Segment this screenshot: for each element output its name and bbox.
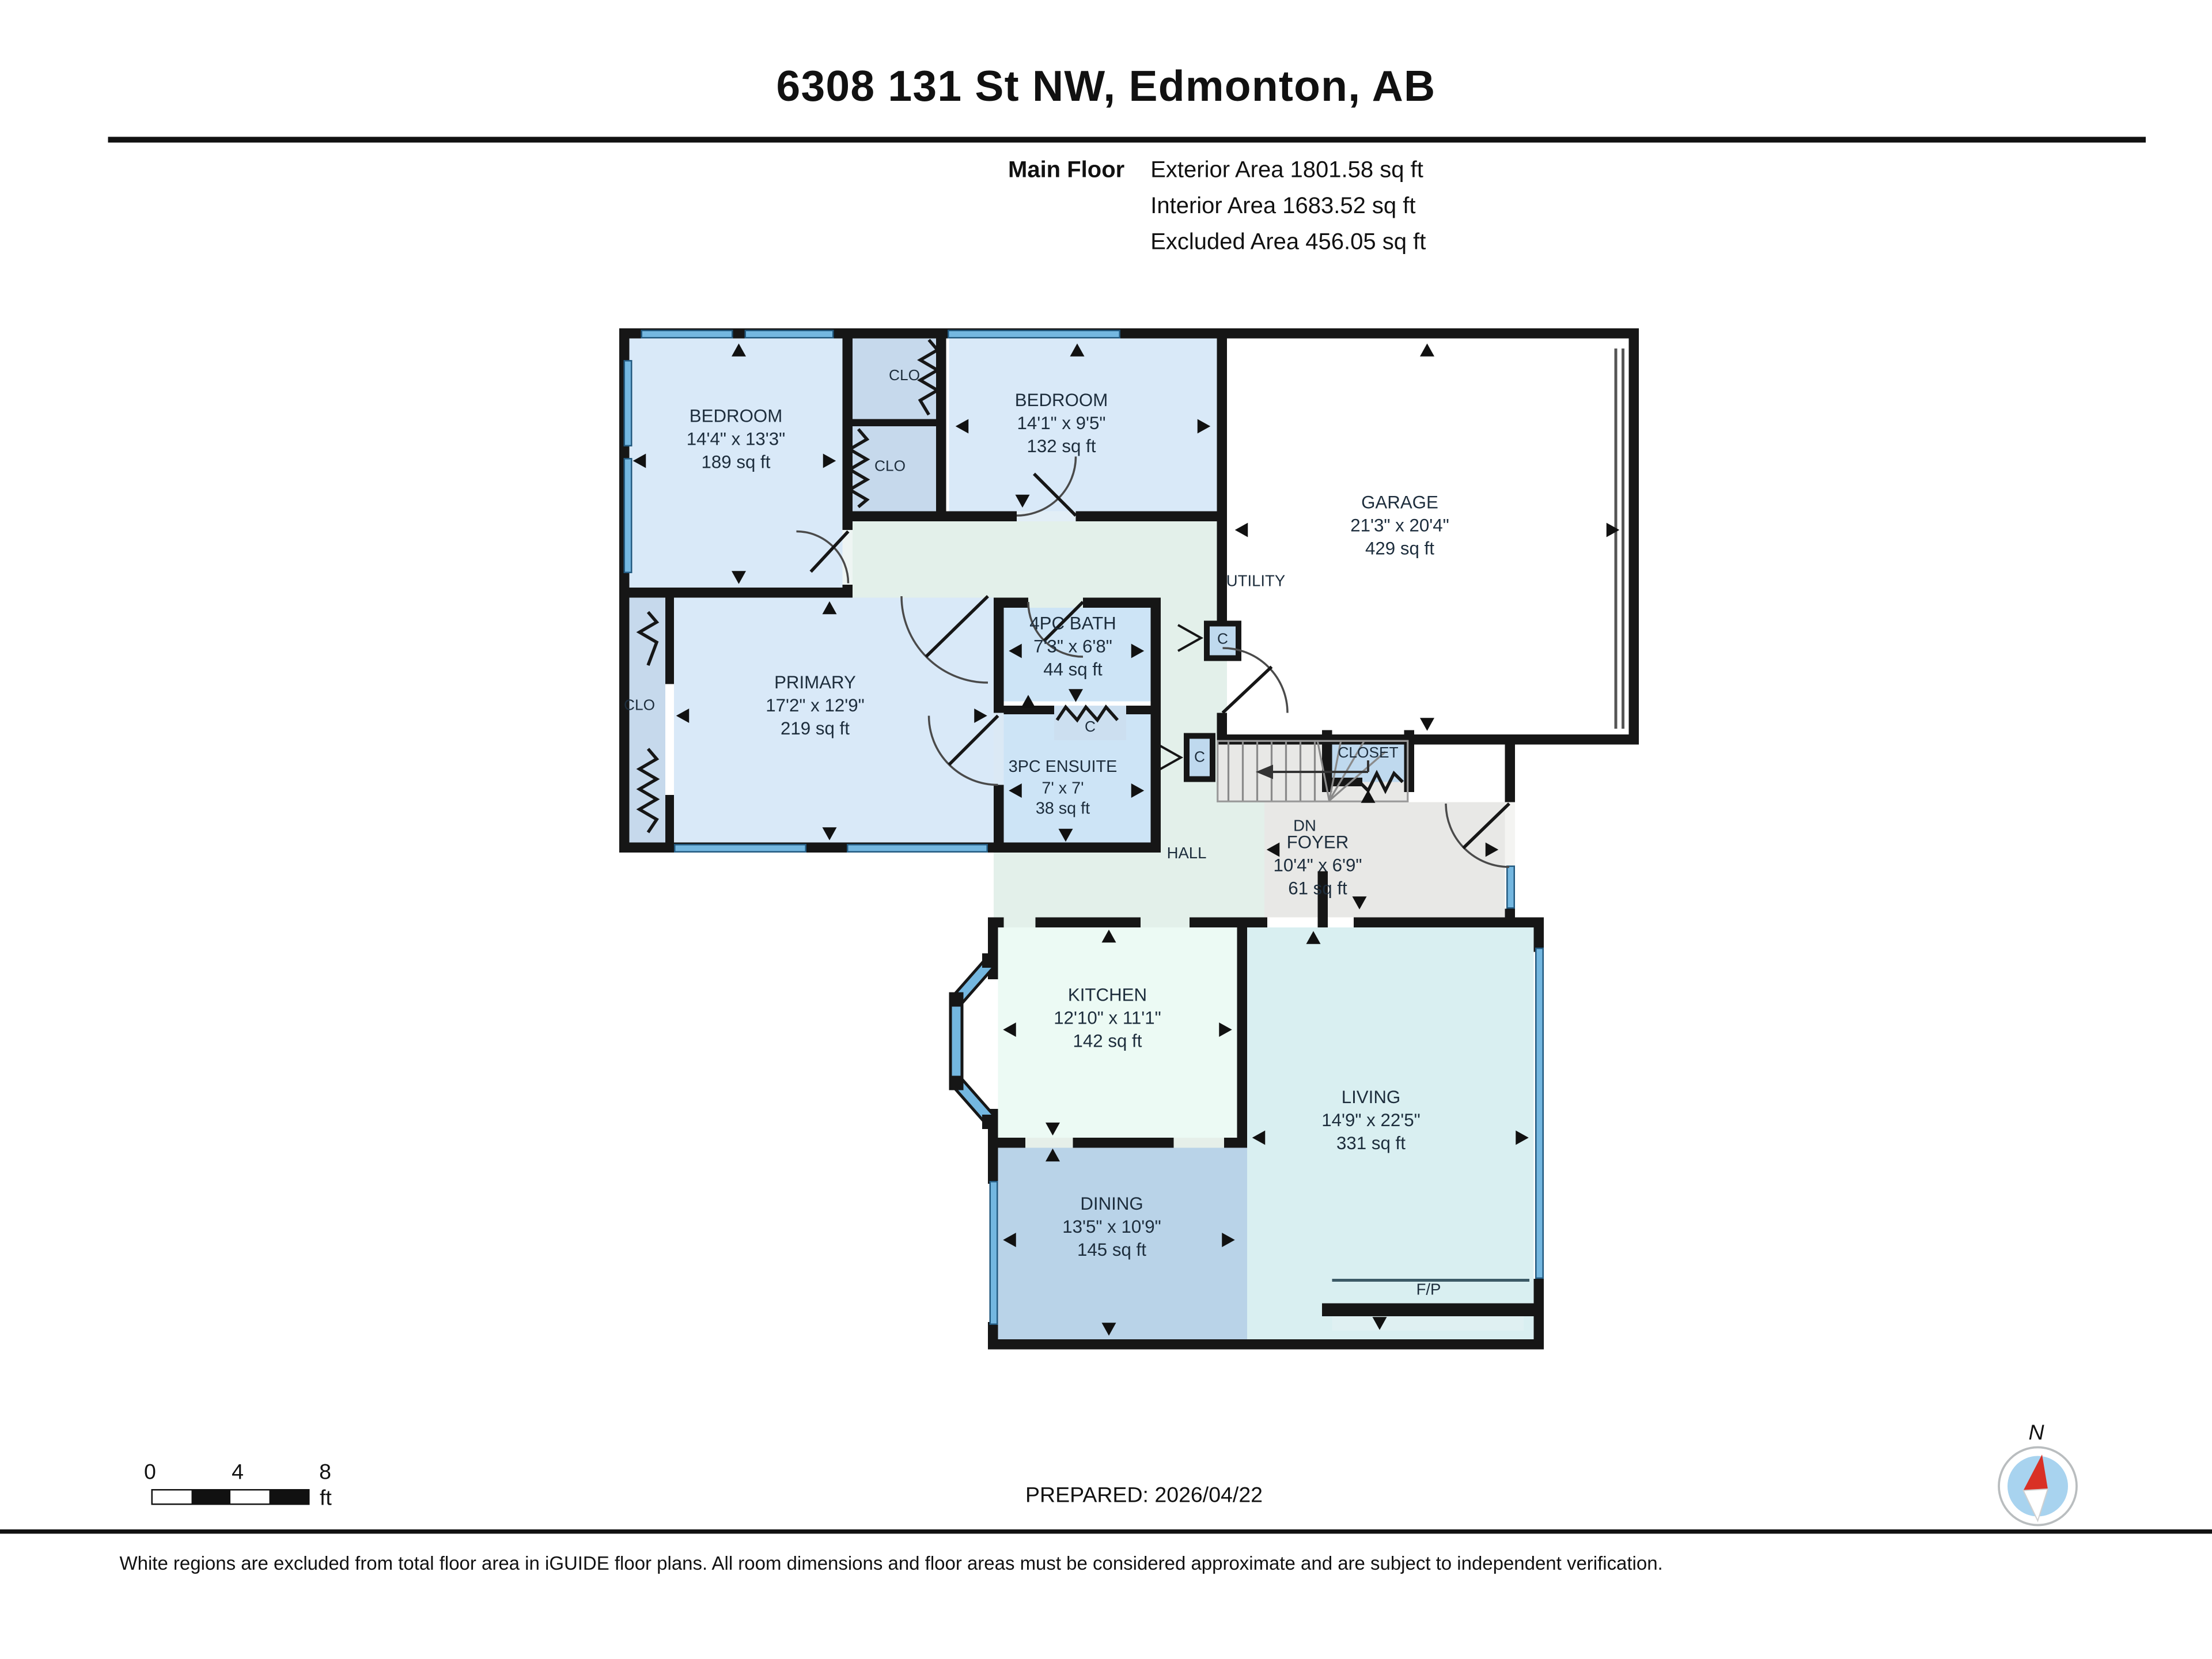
room-area: 142 sq ft — [1054, 1030, 1161, 1053]
scale-bar-ticks: 0 4 8 — [144, 1460, 331, 1485]
room-area: 132 sq ft — [1015, 435, 1108, 458]
dim-arrow-right — [1607, 523, 1620, 537]
room-dim: 14'9" x 22'5" — [1321, 1109, 1420, 1132]
dim-arrow-down — [1420, 718, 1434, 731]
compass-north-label: N — [2028, 1421, 2044, 1445]
room-label-foyer: FOYER 10'4" x 6'9" 61 sq ft — [1273, 831, 1362, 900]
room-label-primary: PRIMARY 17'2" x 12'9" 219 sq ft — [766, 671, 864, 740]
dim-arrow-left — [1009, 644, 1022, 658]
dim-arrow-up — [1070, 343, 1085, 357]
room-dim: 14'4" x 13'3" — [687, 428, 785, 451]
dim-arrow-up — [1102, 930, 1116, 943]
room-dim: 7'3" x 6'8" — [1029, 635, 1116, 658]
room-area: 38 sq ft — [1009, 800, 1118, 821]
dim-arrow-left — [1003, 1233, 1016, 1247]
room-dim: 14'1" x 9'5" — [1015, 412, 1108, 435]
label-clo-mid: CLO — [874, 458, 906, 475]
dim-arrow-right — [1198, 419, 1211, 434]
dim-arrow-left — [633, 454, 646, 468]
room-dim: 10'4" x 6'9" — [1273, 854, 1362, 877]
dim-arrow-down — [1016, 495, 1030, 508]
room-dim: 13'5" x 10'9" — [1062, 1215, 1161, 1238]
room-label-bedroom-2: BEDROOM 14'1" x 9'5" 132 sq ft — [1015, 389, 1108, 458]
room-name: FOYER — [1273, 831, 1362, 854]
scale-segment — [270, 1491, 309, 1504]
dim-arrow-left — [956, 419, 969, 434]
scale-segment — [153, 1491, 192, 1504]
dim-arrow-up — [1046, 1149, 1060, 1162]
dim-arrow-down — [823, 827, 837, 840]
room-label-living: LIVING 14'9" x 22'5" 331 sq ft — [1321, 1086, 1420, 1155]
dim-arrow-right — [1222, 1233, 1235, 1247]
dim-arrow-right — [1131, 644, 1145, 658]
scale-bar — [151, 1489, 310, 1505]
room-name: BEDROOM — [1015, 389, 1108, 412]
room-label-ensuite: 3PC ENSUITE 7' x 7' 38 sq ft — [1009, 757, 1118, 821]
dim-arrow-up — [1361, 790, 1376, 803]
dim-arrow-right — [823, 454, 836, 468]
label-clo-top: CLO — [889, 368, 920, 385]
dim-arrow-up — [1021, 695, 1036, 708]
dim-arrow-up — [1306, 931, 1321, 944]
room-area: 429 sq ft — [1350, 537, 1449, 560]
dim-arrow-left — [1252, 1131, 1266, 1145]
label-utility: UTILITY — [1226, 573, 1285, 590]
label-clo-left: CLO — [624, 697, 655, 714]
label-c-utility: C — [1217, 631, 1228, 648]
dim-arrow-down — [1046, 1123, 1060, 1136]
dim-arrow-down — [1059, 829, 1073, 842]
dim-arrow-up — [823, 601, 837, 615]
scale-segment — [192, 1491, 231, 1504]
label-c-stairs: C — [1194, 749, 1205, 766]
room-area: 61 sq ft — [1273, 877, 1362, 900]
dim-arrow-right — [974, 709, 987, 723]
dim-arrow-up — [732, 343, 746, 357]
dim-arrow-left — [1003, 1022, 1016, 1037]
room-label-bedroom-1: BEDROOM 14'4" x 13'3" 189 sq ft — [687, 405, 785, 474]
room-dim: 21'3" x 20'4" — [1350, 514, 1449, 537]
footer-divider — [0, 1529, 2212, 1534]
dim-arrow-down — [732, 571, 746, 584]
dim-arrow-right — [1486, 843, 1499, 857]
label-closet: CLOSET — [1338, 745, 1398, 762]
label-c-bath: C — [1085, 719, 1096, 736]
dim-arrow-right — [1219, 1022, 1232, 1037]
room-name: LIVING — [1321, 1086, 1420, 1109]
floor-plan-page: 6308 131 St NW, Edmonton, AB Main Floor … — [0, 0, 2212, 1659]
room-label-kitchen: KITCHEN 12'10" x 11'1" 142 sq ft — [1054, 984, 1161, 1053]
room-name: KITCHEN — [1054, 984, 1161, 1007]
room-name: 4PC BATH — [1029, 612, 1116, 635]
bay-window — [949, 953, 997, 1129]
dim-arrow-down — [1102, 1323, 1116, 1336]
footer-disclaimer: White regions are excluded from total fl… — [120, 1552, 2107, 1574]
scale-tick: 0 — [144, 1460, 156, 1485]
room-name: GARAGE — [1350, 491, 1449, 514]
room-label-bath: 4PC BATH 7'3" x 6'8" 44 sq ft — [1029, 612, 1116, 681]
dim-arrow-left — [676, 709, 690, 723]
room-name: DINING — [1062, 1192, 1161, 1215]
dim-arrow-left — [1235, 523, 1248, 537]
room-dim: 17'2" x 12'9" — [766, 694, 864, 717]
scale-tick: 8 — [319, 1460, 331, 1485]
room-area: 145 sq ft — [1062, 1238, 1161, 1262]
floor-plan: BEDROOM 14'4" x 13'3" 189 sq ft BEDROOM … — [0, 0, 2212, 1659]
room-dim: 7' x 7' — [1009, 779, 1118, 800]
prepared-date: PREPARED: 2026/04/22 — [1025, 1483, 1263, 1508]
dim-arrow-down — [1069, 689, 1083, 702]
dim-arrow-down — [1373, 1317, 1387, 1330]
scale-tick: 4 — [232, 1460, 244, 1485]
plan-annotations-svg — [0, 0, 2212, 1659]
room-area: 189 sq ft — [687, 451, 785, 474]
room-name: 3PC ENSUITE — [1009, 757, 1118, 779]
room-name: BEDROOM — [687, 405, 785, 428]
room-label-garage: GARAGE 21'3" x 20'4" 429 sq ft — [1350, 491, 1449, 560]
room-dim: 12'10" x 11'1" — [1054, 1007, 1161, 1030]
dim-arrow-right — [1131, 783, 1145, 798]
dim-arrow-up — [1420, 343, 1434, 357]
label-dn: DN — [1293, 818, 1316, 835]
label-fp: F/P — [1416, 1282, 1441, 1299]
scale-segment — [230, 1491, 270, 1504]
room-area: 219 sq ft — [766, 717, 864, 740]
room-name: PRIMARY — [766, 671, 864, 694]
room-area: 331 sq ft — [1321, 1132, 1420, 1155]
label-hall: HALL — [1167, 846, 1207, 863]
room-area: 44 sq ft — [1029, 658, 1116, 681]
dim-arrow-right — [1516, 1131, 1529, 1145]
scale-unit: ft — [320, 1486, 332, 1511]
room-label-dining: DINING 13'5" x 10'9" 145 sq ft — [1062, 1192, 1161, 1262]
